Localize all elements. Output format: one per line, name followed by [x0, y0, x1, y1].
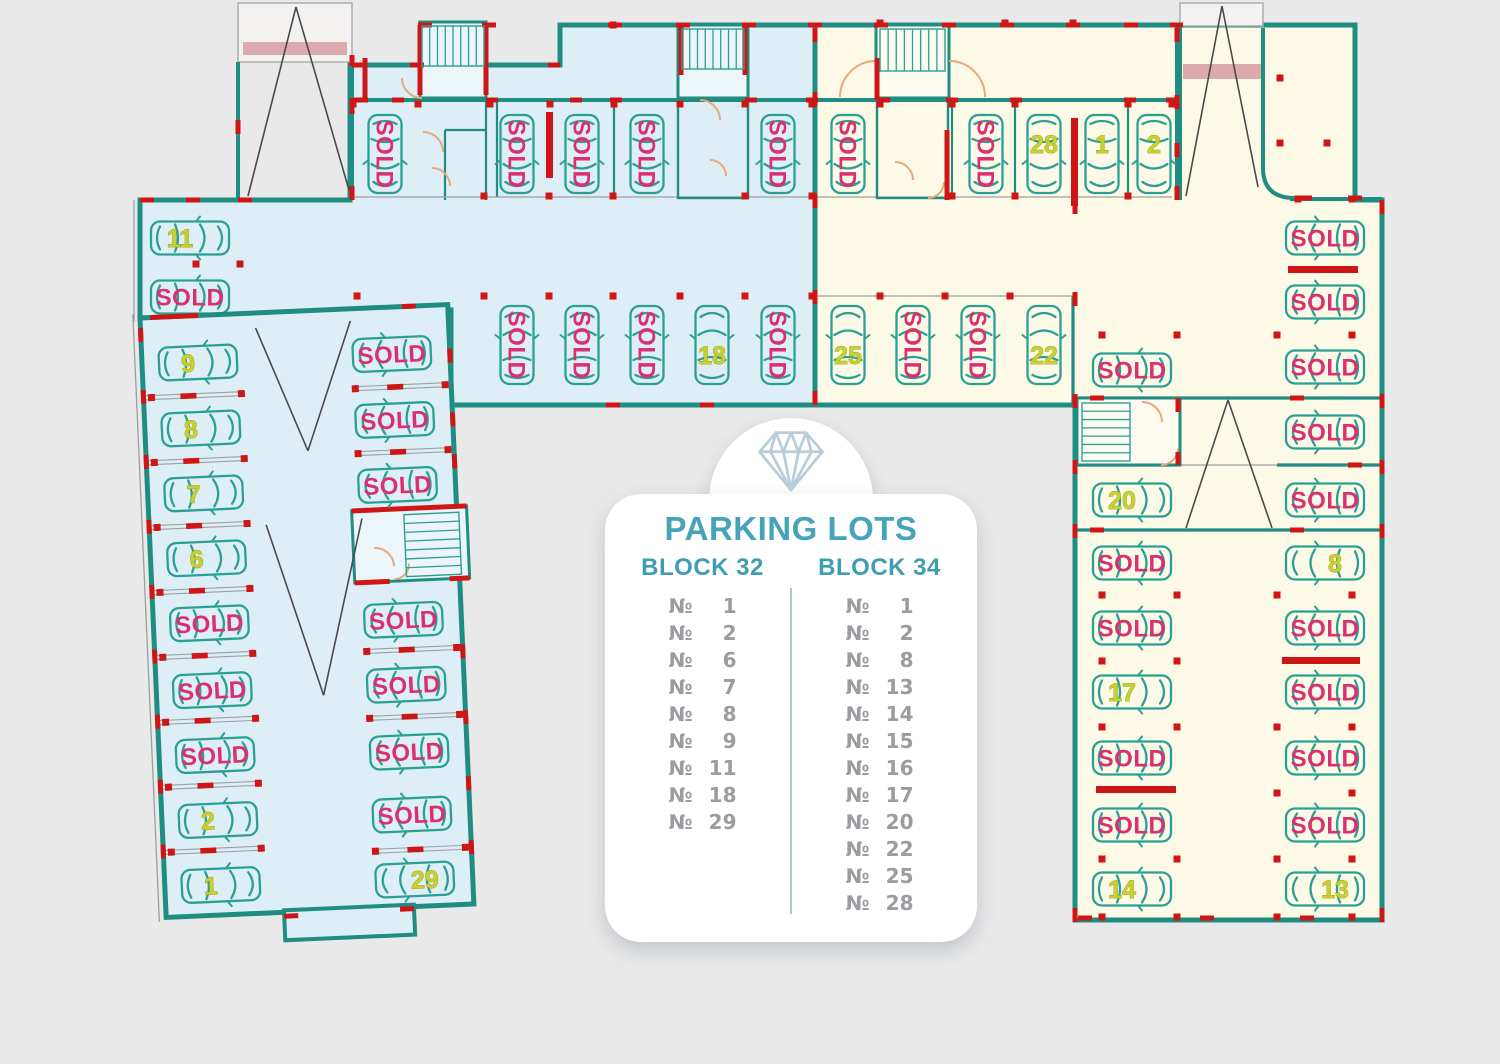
sold-label: SOLD: [1291, 813, 1360, 840]
lot-number-label: 25: [834, 342, 862, 370]
lot-row: №9: [669, 729, 737, 756]
diamond-icon: [750, 424, 832, 500]
sold-label: SOLD: [374, 738, 444, 768]
sold-label: SOLD: [1291, 226, 1360, 253]
lot-number-label: 9: [180, 350, 195, 379]
parking-lots-panel: PARKING LOTS BLOCK 32 №1№2№6№7№8№9№11№18…: [605, 494, 977, 942]
block-32-left-wing: 9876SOLDSOLDSOLD21SOLDSOLDSOLDSOLDSOLDSO…: [133, 300, 485, 946]
block-34-list: BLOCK 34 №1№2№8№13№14№15№16№17№20№22№25№…: [792, 554, 967, 918]
lot-row: №16: [846, 756, 914, 783]
lot-number-label: 11: [167, 225, 194, 253]
sold-label: SOLD: [1291, 746, 1360, 773]
lot-row: №14: [846, 702, 914, 729]
sold-label: SOLD: [180, 741, 250, 771]
lot-row: №22: [846, 837, 914, 864]
sold-label: SOLD: [502, 120, 529, 189]
block-32-list: BLOCK 32 №1№2№6№7№8№9№11№18№29: [615, 554, 790, 918]
sold-label: SOLD: [1291, 420, 1360, 447]
sold-label: SOLD: [898, 311, 925, 380]
lot-row: №6: [669, 648, 737, 675]
sold-label: SOLD: [763, 311, 790, 380]
sold-label: SOLD: [357, 340, 427, 370]
lot-row: №18: [669, 783, 737, 810]
lot-number-label: 20: [1108, 487, 1136, 515]
sold-label: SOLD: [763, 120, 790, 189]
lot-number-label: 28: [1030, 131, 1058, 159]
lot-row: №1: [846, 594, 914, 621]
lot-row: №7: [669, 675, 737, 702]
lot-row: №29: [669, 810, 737, 837]
sold-label: SOLD: [632, 120, 659, 189]
lot-number-label: 1: [1095, 131, 1109, 159]
lot-row: №17: [846, 783, 914, 810]
sold-label: SOLD: [1291, 616, 1360, 643]
sold-label: SOLD: [971, 120, 998, 189]
sold-label: SOLD: [369, 606, 439, 636]
lot-row: №11: [669, 756, 737, 783]
lot-number-label: 2: [1147, 131, 1161, 159]
lot-row: №8: [846, 648, 914, 675]
lot-row: №1: [669, 594, 737, 621]
block-34-label: BLOCK 34: [818, 554, 941, 582]
sold-label: SOLD: [963, 311, 990, 380]
sold-label: SOLD: [1098, 616, 1167, 643]
lot-number-label: 8: [1328, 550, 1342, 578]
sold-label: SOLD: [567, 120, 594, 189]
sold-label: SOLD: [632, 311, 659, 380]
sold-label: SOLD: [502, 311, 529, 380]
lot-row: №2: [669, 621, 737, 648]
sold-label: SOLD: [175, 609, 245, 639]
lot-number-label: 22: [1030, 342, 1058, 370]
block-32-label: BLOCK 32: [641, 554, 764, 582]
lot-row: №15: [846, 729, 914, 756]
sold-label: SOLD: [377, 801, 447, 831]
lot-row: №8: [669, 702, 737, 729]
lot-number-label: 2: [200, 807, 215, 836]
lot-number-label: 8: [183, 416, 198, 445]
sold-label: SOLD: [1291, 680, 1360, 707]
panel-title: PARKING LOTS: [605, 494, 977, 548]
sold-label: SOLD: [156, 285, 225, 312]
lot-number-label: 6: [189, 545, 204, 574]
sold-label: SOLD: [833, 120, 860, 189]
lot-number-label: 18: [698, 342, 726, 370]
sold-label: SOLD: [371, 671, 441, 701]
sold-label: SOLD: [1291, 488, 1360, 515]
sold-label: SOLD: [1291, 355, 1360, 382]
sold-label: SOLD: [1098, 358, 1167, 385]
sold-label: SOLD: [567, 311, 594, 380]
sold-label: SOLD: [370, 120, 397, 189]
sold-label: SOLD: [1098, 746, 1167, 773]
lot-row: №25: [846, 864, 914, 891]
sold-label: SOLD: [1098, 813, 1167, 840]
sold-label: SOLD: [1098, 551, 1167, 578]
lot-row: №28: [846, 891, 914, 918]
lot-number-label: 17: [1108, 679, 1136, 707]
lot-number-label: 1: [203, 872, 218, 901]
lot-number-label: 7: [186, 481, 201, 510]
sold-label: SOLD: [363, 471, 433, 501]
lot-row: №13: [846, 675, 914, 702]
sold-label: SOLD: [360, 406, 430, 436]
lot-row: №20: [846, 810, 914, 837]
parking-floor-plan: SOLDSOLDSOLDSOLDSOLDSOLDSOLD2812SOLDSOLD…: [0, 0, 1500, 1064]
ramp-top-left: [238, 3, 352, 200]
lot-number-label: 29: [410, 866, 439, 895]
sold-label: SOLD: [1291, 290, 1360, 317]
lot-number-label: 14: [1108, 876, 1136, 904]
lot-number-label: 13: [1321, 876, 1349, 904]
lot-row: №2: [846, 621, 914, 648]
sold-label: SOLD: [177, 676, 247, 706]
